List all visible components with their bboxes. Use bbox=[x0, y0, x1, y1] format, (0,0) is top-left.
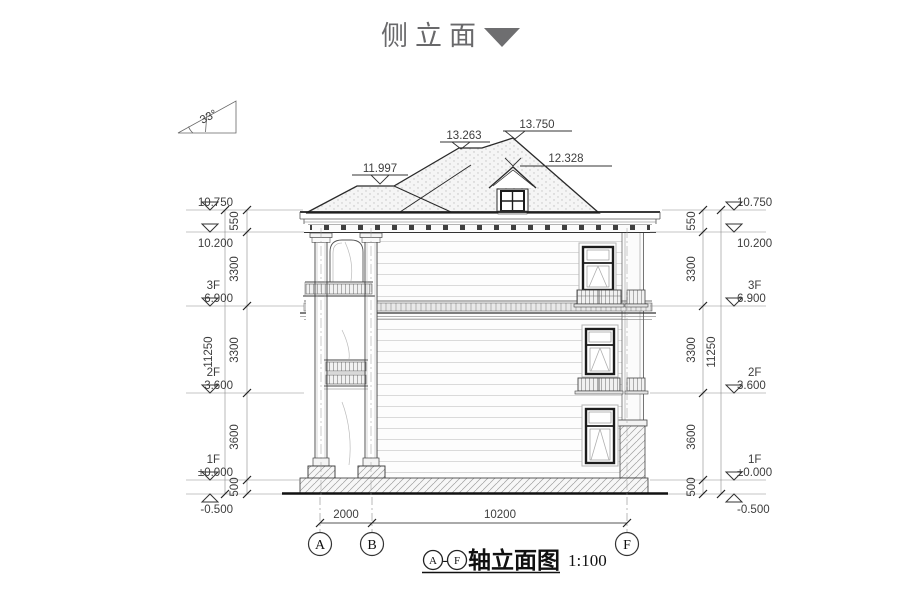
axis-letter: A bbox=[315, 538, 326, 553]
level-value: 6.900 bbox=[204, 293, 233, 305]
floor-label: 3F bbox=[207, 280, 220, 292]
elevation-value: 13.263 bbox=[446, 130, 481, 142]
dentil-band bbox=[310, 225, 650, 232]
caption-scale: 1:100 bbox=[568, 551, 607, 570]
axis-bubble-f: F bbox=[616, 533, 639, 556]
dim-total-label: 11250 bbox=[706, 336, 718, 367]
balcony-railing-3f bbox=[303, 282, 375, 296]
level-value: -0.500 bbox=[200, 504, 233, 516]
level-value: ±0.000 bbox=[737, 467, 772, 479]
dim-label: 550 bbox=[229, 211, 241, 230]
level-value: 3.600 bbox=[737, 380, 766, 392]
dim-label: 3300 bbox=[229, 256, 241, 282]
dim-label: 3600 bbox=[229, 424, 241, 450]
dimensions-bottom: 2000 10200 A B F bbox=[309, 497, 639, 556]
dim-label: 3300 bbox=[686, 256, 698, 282]
roof-slope-indicator: 33° bbox=[178, 101, 236, 133]
dim-label: 550 bbox=[686, 211, 698, 230]
elevation-value: 12.328 bbox=[548, 153, 583, 165]
floor-label: 3F bbox=[748, 280, 761, 292]
dim-label: 500 bbox=[686, 477, 698, 496]
page-title: 侧立面 bbox=[381, 21, 483, 51]
elevation-marker-11997: 11.997 bbox=[352, 163, 408, 184]
ac-platform-2f bbox=[575, 378, 648, 394]
floor-label: 2F bbox=[748, 367, 761, 379]
porch bbox=[303, 233, 385, 494]
drawing-page: 侧立面 33° 11.997 bbox=[0, 0, 910, 612]
dim-label: 3600 bbox=[686, 424, 698, 450]
dim-label: 3300 bbox=[686, 337, 698, 363]
level-value: 10.200 bbox=[737, 238, 772, 250]
roof bbox=[306, 138, 599, 214]
elevation-marker-13263: 13.263 bbox=[440, 130, 490, 149]
caption-axis-from: A bbox=[429, 555, 437, 567]
floor-label: 1F bbox=[207, 454, 220, 466]
elevation-value: 11.997 bbox=[363, 163, 397, 175]
window-3f bbox=[579, 243, 616, 292]
axis-letter: F bbox=[623, 538, 631, 553]
plinth bbox=[300, 478, 648, 493]
level-labels-right: 10.750 10.200 3F 6.900 2F 3.600 1F ±0.00… bbox=[737, 197, 772, 516]
window-2f bbox=[582, 325, 618, 377]
axis-bubble-a: A bbox=[309, 533, 332, 556]
eave-cornice bbox=[300, 212, 660, 233]
level-value: -0.500 bbox=[737, 504, 770, 516]
dim-segment-labels: 550 3300 3300 3600 500 11250 bbox=[686, 211, 718, 496]
dim-label: 500 bbox=[229, 477, 241, 496]
caption-separator: - bbox=[443, 553, 448, 569]
dimensions-left: 550 3300 3300 3600 500 11250 10.750 10.2… bbox=[186, 197, 304, 516]
dim-total-label: 11250 bbox=[203, 336, 215, 367]
elevation-value: 13.750 bbox=[519, 119, 554, 131]
collapse-triangle-icon[interactable] bbox=[484, 28, 520, 47]
level-value: 3.600 bbox=[204, 380, 233, 392]
floor-label: 2F bbox=[207, 367, 220, 379]
caption-title: 轴立面图 bbox=[468, 547, 560, 573]
floor-label: 1F bbox=[748, 454, 761, 466]
slope-angle-label: 33° bbox=[198, 108, 219, 127]
level-value: ±0.000 bbox=[198, 467, 233, 479]
corner-pilaster bbox=[618, 233, 647, 478]
level-value: 10.750 bbox=[737, 197, 772, 209]
level-value: 10.750 bbox=[198, 197, 233, 209]
dim-label-b-f: 10200 bbox=[484, 509, 516, 521]
axis-letter: B bbox=[367, 538, 376, 553]
section-header: 侧立面 bbox=[381, 21, 520, 51]
level-value: 6.900 bbox=[737, 293, 766, 305]
dimensions-right: 550 3300 3300 3600 500 11250 10.750 10.2… bbox=[650, 197, 772, 516]
caption-axis-to: F bbox=[454, 555, 460, 567]
drawing-caption: A - F 轴立面图 1:100 bbox=[422, 547, 607, 573]
axis-bubble-b: B bbox=[361, 533, 384, 556]
elevation-marker-13750: 13.750 bbox=[503, 119, 572, 139]
dim-label-a-b: 2000 bbox=[333, 509, 359, 521]
window-1f bbox=[582, 405, 618, 466]
level-value: 10.200 bbox=[198, 238, 233, 250]
plinth-and-ground bbox=[282, 478, 668, 494]
dim-label: 3300 bbox=[229, 337, 241, 363]
ac-platform-3f bbox=[574, 290, 648, 307]
